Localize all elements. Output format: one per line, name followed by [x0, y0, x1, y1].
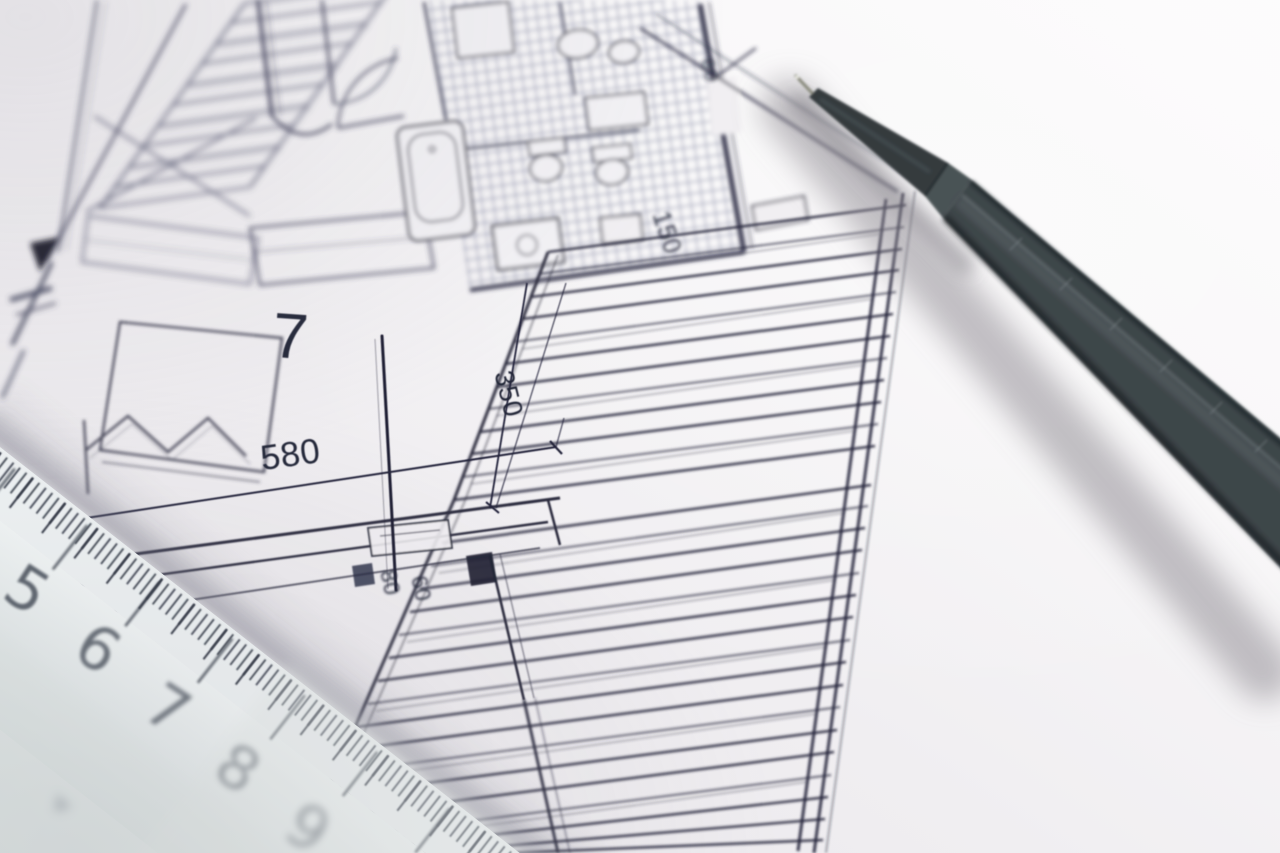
- scene-svg: 7 580 350 80 60 150 60 4 5 6 7 8 9: [0, 0, 1280, 853]
- photo-canvas: 7 580 350 80 60 150 60 4 5 6 7 8 9: [0, 0, 1280, 853]
- pen-tip-glint: [795, 75, 798, 78]
